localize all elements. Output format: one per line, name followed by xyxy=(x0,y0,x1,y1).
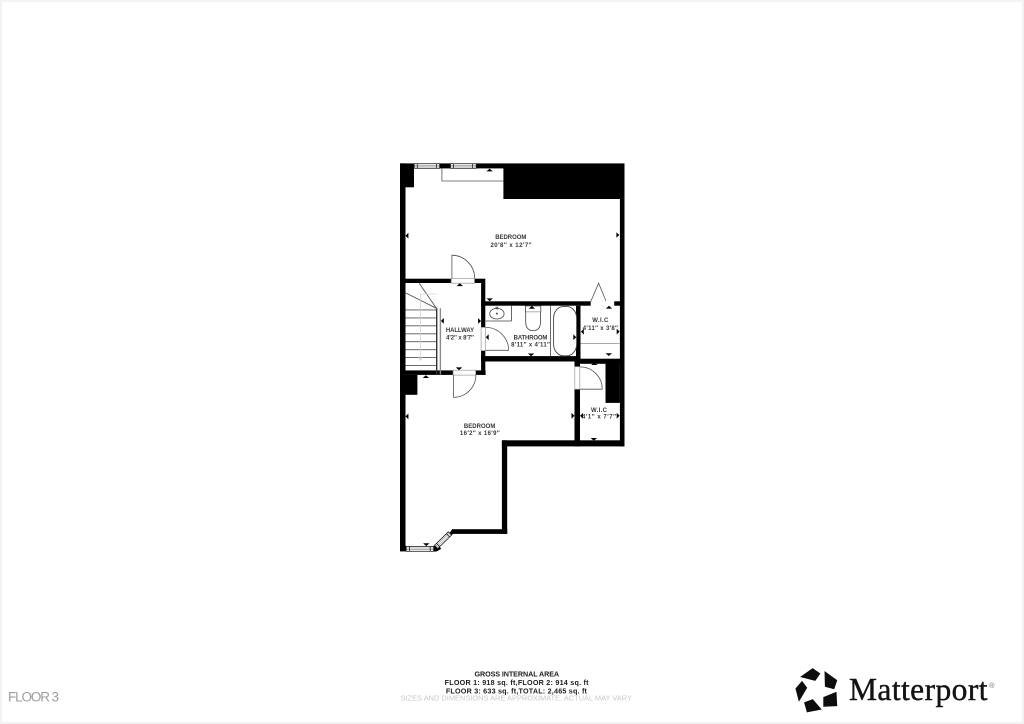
svg-text:8′11″ x 4′11″: 8′11″ x 4′11″ xyxy=(511,342,550,348)
svg-text:4′2″ x 8′7″: 4′2″ x 8′7″ xyxy=(446,335,474,341)
svg-text:Matterport: Matterport xyxy=(849,672,988,707)
svg-text:BEDROOM: BEDROOM xyxy=(464,424,496,430)
svg-text:16′2″ x 16′9″: 16′2″ x 16′9″ xyxy=(460,431,500,437)
svg-text:BATHROOM: BATHROOM xyxy=(514,336,548,342)
svg-text:SIZES AND DIMENSIONS ARE APPRO: SIZES AND DIMENSIONS ARE APPROXIMATE, AC… xyxy=(401,693,634,702)
svg-text:®: ® xyxy=(989,681,995,690)
svg-text:20′8″ x 12′7″: 20′8″ x 12′7″ xyxy=(491,243,532,249)
svg-text:W.I.C: W.I.C xyxy=(592,318,609,324)
svg-text:HALLWAY: HALLWAY xyxy=(446,328,474,334)
svg-text:4′11″ x 3′8″: 4′11″ x 3′8″ xyxy=(583,326,618,332)
svg-text:W.I.C: W.I.C xyxy=(591,408,608,414)
svg-text:BEDROOM: BEDROOM xyxy=(495,235,526,241)
svg-text:FLOOR 3: FLOOR 3 xyxy=(8,690,59,705)
svg-text:4′1″ x 7′7″: 4′1″ x 7′7″ xyxy=(582,415,616,421)
